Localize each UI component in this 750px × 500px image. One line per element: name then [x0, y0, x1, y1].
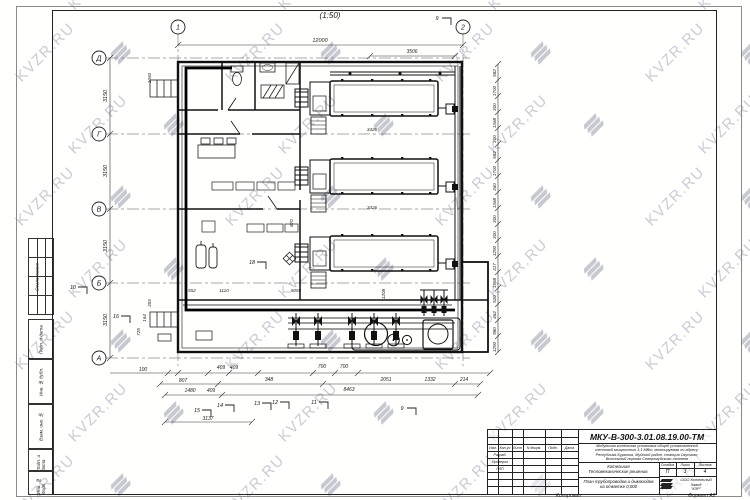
section-mark-label: 13 — [254, 401, 261, 407]
dim-label: 807 — [179, 378, 188, 384]
dim-label: 462 — [492, 311, 497, 319]
dim-label: 700 — [318, 364, 327, 370]
water-treatment-units — [196, 241, 217, 268]
company-name: ООО Котельный Завод "КЗР" — [676, 478, 716, 493]
dim-label: 12000 — [312, 38, 328, 44]
dim-label: 552 — [188, 288, 196, 293]
dim-label: 1290 — [492, 245, 497, 256]
object-name: Котельная Тепломеханические решения. — [579, 464, 658, 476]
side-cell-inv-dupl: Инв. № дубл. — [28, 358, 54, 405]
dim-label: 1060 — [147, 72, 152, 83]
dim-label: 1700 — [492, 85, 497, 96]
format-label: Формат А2 — [688, 493, 715, 499]
floor-plan: Д Г В Б А 1 2 (1:50) — [0, 0, 750, 500]
section-mark-label: 15 — [194, 408, 201, 414]
axis-row-label: Б — [97, 281, 102, 288]
dim-label: 409 — [207, 388, 216, 394]
section-mark-label: 11 — [311, 400, 317, 406]
section-mark-label: 9 — [435, 16, 438, 22]
dim-label: 300 — [492, 231, 497, 239]
section-mark-flags — [78, 18, 451, 417]
description-line: Восточный портал Северомуйского тоннеля — [579, 457, 715, 461]
dim-label: 1700 — [492, 165, 497, 176]
electrical-panels — [202, 182, 298, 232]
copied-label: Копировал — [556, 493, 581, 499]
side-cell-label: Подп. и дата — [29, 320, 53, 359]
role-gip: ГИП — [488, 465, 512, 472]
side-cell-label: Инв. № дубл. — [29, 359, 53, 404]
dim-label: 1332 — [424, 377, 435, 383]
section-marks: 9 10 11 12 13 14 15 16 18 9 — [70, 16, 439, 414]
dim-label: 300 — [492, 103, 497, 111]
col-koluch: Кол.уч — [498, 444, 512, 451]
dim-label: 300 — [492, 215, 497, 223]
section-mark-label: 12 — [272, 400, 278, 406]
dim-label: 409 — [217, 365, 226, 371]
dim-label: 1110 — [219, 288, 229, 293]
col-podp: Подп. — [545, 444, 561, 451]
dim-label: 3150 — [103, 239, 109, 252]
floor-drain-icon — [283, 252, 296, 265]
stage-value: П — [659, 468, 676, 476]
scale-note: (1:50) — [320, 11, 341, 20]
dim-label: 725 — [136, 328, 141, 336]
dim-label: 582 — [492, 151, 497, 159]
sheet-title-line: на отметке 0,000 — [579, 484, 658, 489]
dim-label: 1290 — [492, 341, 497, 352]
dim-label: 393 — [147, 299, 152, 307]
axis-row-label: В — [97, 207, 102, 214]
boiler-unit-3 — [295, 234, 454, 288]
dim-label: 214 — [459, 377, 469, 383]
dim-label: 520 — [492, 295, 497, 303]
dim-label: 3426 — [367, 205, 378, 210]
office-furniture — [198, 138, 236, 158]
dim-label: 2051 — [379, 377, 391, 383]
axis-row-label: А — [96, 356, 102, 363]
sanitary-fixtures — [231, 63, 299, 98]
approval-table: Согласовано — [28, 238, 54, 315]
dim-label: 3137 — [202, 416, 213, 422]
object-line: Тепломеханические решения. — [579, 469, 658, 474]
dim-label: 317 — [492, 263, 497, 271]
side-cell-label: Инв. № подл. — [29, 471, 53, 494]
col-list: Лист — [512, 444, 523, 451]
dim-label: 3150 — [103, 89, 109, 102]
axis-col-label: 1 — [176, 25, 180, 32]
project-description: Модульная котельная установка общей уста… — [579, 444, 715, 462]
dim-label: 300 — [492, 135, 497, 143]
dim-label: 409 — [230, 365, 239, 371]
side-cell-label: Подп. и дата — [29, 449, 53, 471]
dim-label: 1368 — [492, 117, 497, 128]
doc-number: МКУ-В-300-3.01.08.19.00-ТМ — [578, 430, 716, 443]
dimension-lines — [107, 42, 501, 425]
drawing-sheet: KVZR.RUKVZR.RUKVZR.RUKVZR.RUKVZR.RUKVZR.… — [0, 0, 750, 500]
sheet-title: План трубопроводов и дымоходов на отметк… — [579, 479, 658, 492]
col-izm: Изм. — [488, 444, 498, 451]
valve-group — [420, 290, 448, 316]
dim-label: 164 — [142, 314, 147, 322]
chimney-risers — [330, 66, 460, 300]
boiler-unit-1 — [295, 79, 454, 134]
dim-label: 870 — [289, 219, 294, 227]
dim-label: 1368 — [492, 197, 497, 208]
approval-label: Согласовано — [21, 239, 53, 314]
dim-label: 3150 — [103, 164, 109, 177]
dim-label: 3506 — [406, 49, 417, 55]
list-value: 3 — [676, 468, 694, 476]
col-ndok: N докум. — [523, 444, 545, 451]
dim-label: 360 — [492, 183, 497, 191]
section-mark-label: 14 — [217, 403, 223, 409]
col-data: Дата — [561, 444, 578, 451]
section-mark-label: 16 — [113, 314, 120, 320]
role-prover: Проверил — [488, 458, 512, 465]
dim-label: 8463 — [343, 387, 354, 393]
dim-label: 700 — [340, 364, 349, 370]
entry-steps — [150, 80, 178, 327]
role-razrab: Разраб. — [488, 451, 512, 458]
side-cell-vzam-inv: Взам. инв. № — [28, 403, 54, 450]
company-logo-icon — [661, 478, 675, 492]
dim-label: 980 — [492, 327, 497, 335]
axis-col-label: 2 — [460, 25, 465, 32]
dim-label: 3426 — [367, 127, 378, 132]
side-cell-inv-orig: Инв. № подл. — [28, 470, 54, 495]
listov-value: 4 — [694, 468, 716, 476]
axis-row-label: Д — [96, 56, 102, 63]
dim-label: 3150 — [103, 313, 109, 326]
dim-label: 100 — [139, 367, 148, 373]
dim-label: 1558 — [492, 277, 497, 288]
section-mark-label: 10 — [70, 285, 77, 291]
side-cell-sign-date-2: Подп. и дата — [28, 448, 54, 472]
dim-label: 1208 — [381, 288, 386, 299]
dim-label: 348 — [265, 377, 274, 383]
section-mark-label: 18 — [249, 260, 256, 266]
dim-label: 582 — [492, 69, 497, 77]
side-cell-label: Взам. инв. № — [29, 404, 53, 449]
section-mark-label: 9 — [400, 406, 403, 412]
company-line: "КЗР" — [676, 487, 716, 492]
dim-label: 1480 — [184, 388, 195, 394]
title-block: Изм. Кол.уч Лист N докум. Подп. Дата Раз… — [487, 429, 717, 495]
boiler-unit-2 — [295, 157, 454, 212]
side-cell-sign-date-1: Подп. и дата — [28, 319, 54, 360]
